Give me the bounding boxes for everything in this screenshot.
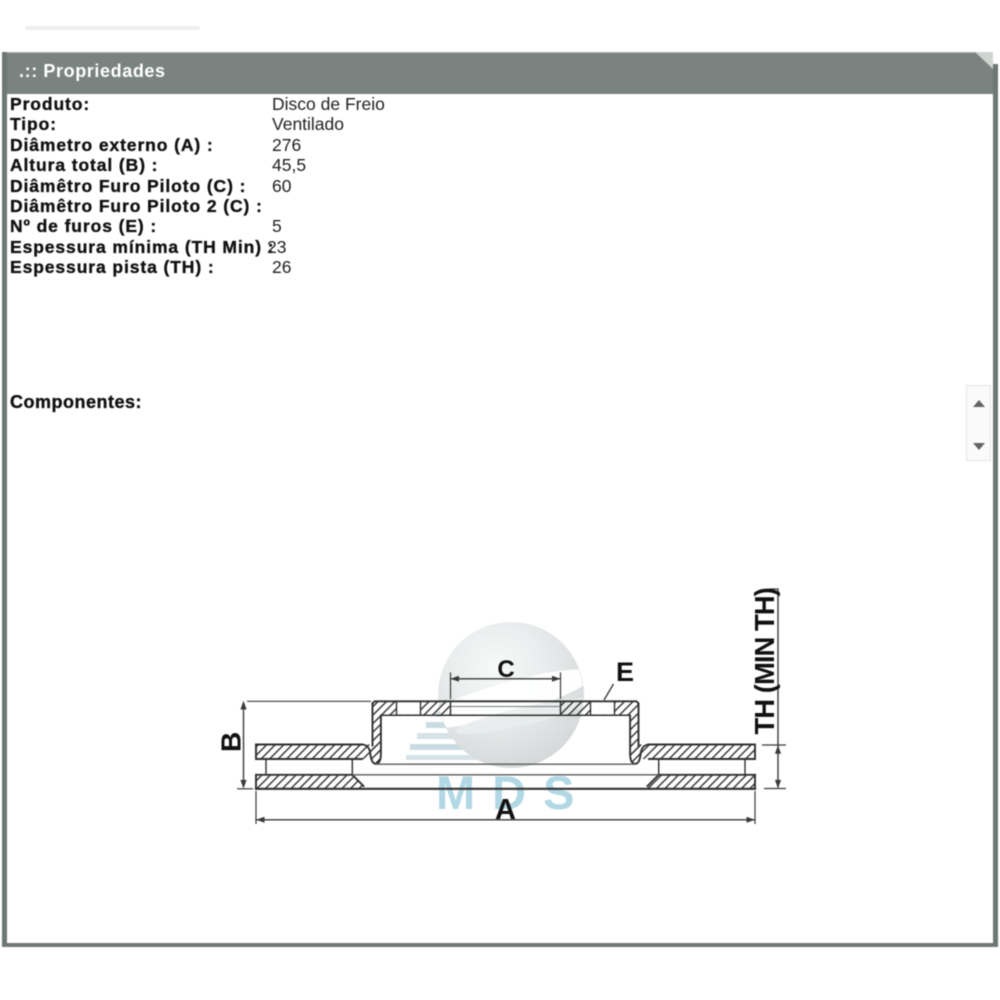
svg-text:B: B [216, 732, 247, 752]
svg-text:C: C [497, 656, 514, 683]
svg-text:E: E [616, 657, 634, 687]
svg-text:TH (MIN TH): TH (MIN TH) [749, 588, 780, 734]
svg-text:A: A [495, 794, 516, 826]
